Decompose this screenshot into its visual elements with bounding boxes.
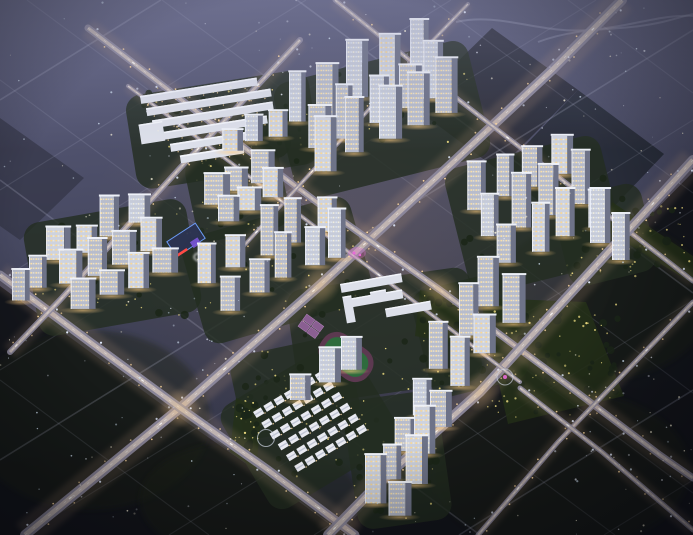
vignette (0, 0, 693, 535)
city-render-canvas (0, 0, 693, 535)
aerial-city-render (0, 0, 693, 535)
